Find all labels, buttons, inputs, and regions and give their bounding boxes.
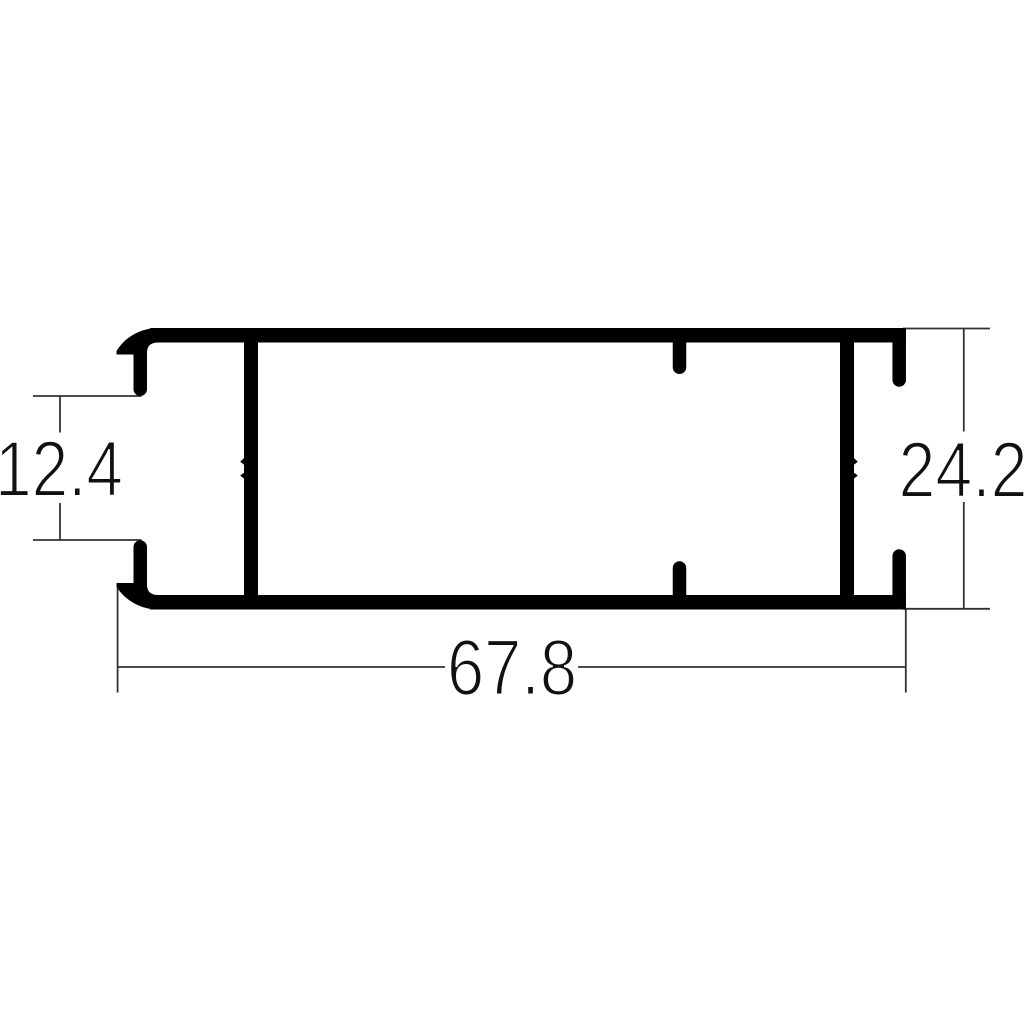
svg-text:24.2: 24.2 bbox=[899, 427, 1024, 515]
svg-text:67.8: 67.8 bbox=[447, 623, 577, 712]
svg-text:12.4: 12.4 bbox=[0, 425, 123, 513]
